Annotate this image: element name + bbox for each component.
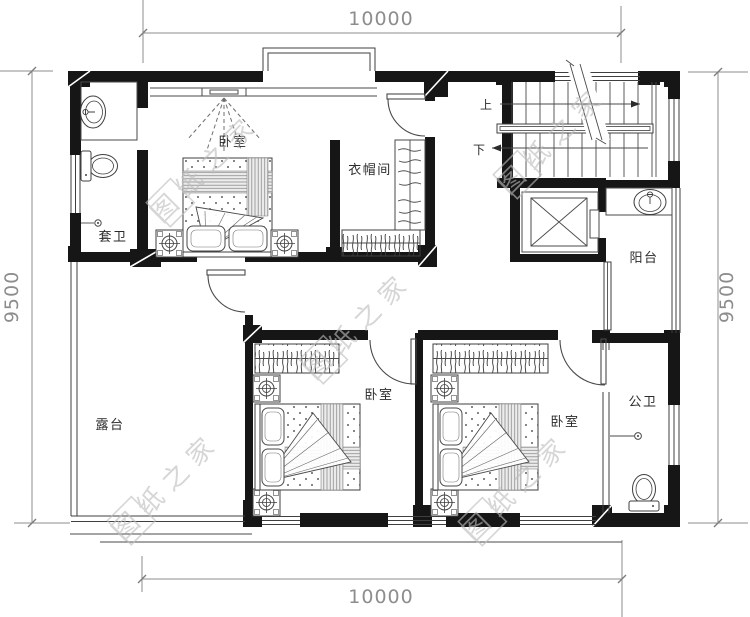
bedroom-left-door [370, 339, 416, 384]
label-cloakroom: 衣帽间 [348, 162, 392, 178]
stairs-down-label: 下 [473, 143, 485, 157]
dim-top-value: 10000 [348, 8, 413, 30]
dimension-bottom: 10000 [138, 540, 626, 617]
dim-bottom-value: 10000 [348, 586, 413, 608]
stairs-up-label: 上 [480, 98, 492, 112]
master-bedroom-door [207, 270, 245, 312]
cloakroom-door [387, 94, 425, 136]
dimension-right: 9500 [688, 68, 748, 527]
svg-text:图纸之家: 图纸之家 [107, 427, 227, 547]
watermark: 图纸之家 [296, 263, 419, 386]
watermark: 图纸之家 [104, 424, 227, 547]
dim-left-value: 9500 [1, 271, 23, 323]
balcony-partition [603, 262, 611, 513]
floor-plan-page: 10000 10000 9500 9500 [0, 0, 750, 617]
label-ensuite-bath: 套卫 [98, 229, 127, 245]
dimension-top: 10000 [139, 0, 625, 63]
cloakroom-storage [342, 140, 425, 256]
public-bath-fixtures [610, 433, 659, 511]
elevator [522, 192, 599, 252]
bedroom-right-door [560, 339, 606, 385]
dimension-left: 9500 [0, 67, 70, 527]
floor-plan-canvas: 10000 10000 9500 9500 [0, 0, 750, 617]
label-bedroom-right: 卧室 [550, 414, 579, 430]
label-terrace: 露台 [95, 418, 124, 433]
svg-text:图纸之家: 图纸之家 [299, 266, 419, 386]
label-public-bath: 公卫 [628, 395, 657, 410]
label-bedroom-left: 卧室 [364, 387, 393, 403]
balcony-sink [606, 188, 672, 215]
ensuite-bath-fixtures [81, 82, 138, 226]
dim-right-value: 9500 [716, 271, 738, 323]
label-balcony: 阳台 [629, 251, 658, 266]
